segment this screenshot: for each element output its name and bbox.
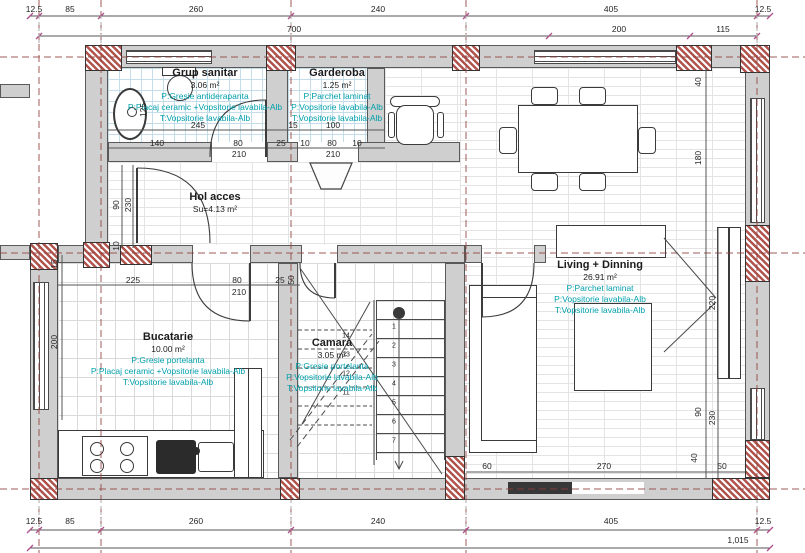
step-number: 3 [392, 362, 396, 369]
pier-top-right-corner [740, 45, 770, 73]
pier-top-1 [85, 45, 122, 71]
room-finish: P:Vopsitorie lavabila-Alb [291, 102, 383, 113]
dim-label: 15 [288, 121, 297, 130]
dim-label: 25 [275, 276, 284, 285]
dim-label: 60 [482, 462, 491, 471]
window-kitchen-left [33, 282, 49, 410]
burner [90, 442, 104, 456]
dim-label: 405 [604, 5, 618, 14]
dim-label-total: 1,015 [727, 536, 748, 545]
room-area: 26.91 m² [554, 272, 646, 283]
dim-label: 405 [604, 517, 618, 526]
office-chair-arm-left [388, 112, 395, 138]
dining-chair [531, 87, 558, 105]
wall-bath-south-c [358, 142, 460, 162]
dim-label: 270 [597, 462, 611, 471]
dim-label: 50 [717, 462, 726, 471]
pier-bottom-right [712, 478, 770, 500]
window-right-lower [750, 388, 765, 440]
terrace-door [508, 482, 644, 494]
dim-label: 240 [371, 517, 385, 526]
room-finish: P:Gresie portelanta [91, 355, 245, 366]
pier-bottom-left-corner [30, 478, 58, 500]
pier-top-4 [676, 45, 712, 71]
room-finish: P:Parchet laminat [554, 283, 646, 294]
room-name: Camara [286, 336, 378, 350]
dim-label: 200 [612, 25, 626, 34]
dim-label: 80 [232, 276, 241, 285]
room-finish: T:Vopsitorie lavabila-Alb [286, 383, 378, 394]
window-right-upper [750, 98, 765, 223]
dim-label: 700 [287, 25, 301, 34]
step-number: 5 [392, 400, 396, 407]
dim-label: 210 [232, 288, 246, 297]
wall-hall-south-e [534, 245, 546, 263]
dim-label: 12.5 [26, 5, 43, 14]
room-label-hall: Hol acces Su=4.13 m² [189, 190, 240, 215]
dim-label: 220 [708, 296, 717, 310]
dim-label: 85 [65, 517, 74, 526]
room-name: Hol acces [189, 190, 240, 204]
sofa-seat [481, 297, 537, 441]
dining-chair [531, 173, 558, 191]
pier-bottom-stairs [280, 478, 300, 500]
dim-label: 80 [233, 139, 242, 148]
dining-chair [579, 173, 606, 191]
step-number: 1 [392, 324, 396, 331]
pier-top-3 [452, 45, 480, 71]
step-number: 2 [392, 343, 396, 350]
dim-label: 260 [189, 5, 203, 14]
burner [120, 459, 134, 473]
pier-right-lower [745, 440, 770, 478]
dim-label: 40 [690, 453, 699, 462]
dim-label: 210 [326, 150, 340, 159]
wall-hall-south-d [465, 245, 482, 263]
dining-chair [579, 87, 606, 105]
dim-label: 115 [716, 25, 730, 34]
dim-label: 10 [300, 139, 309, 148]
wall-left-upper [85, 45, 108, 265]
room-label-pantry: Camara 3.05 m² P:Gresie portelanta P:Vop… [286, 336, 378, 394]
room-area: 1.25 m² [291, 80, 383, 91]
office-chair-seat [396, 105, 434, 145]
room-finish: P:Parchet laminat [291, 91, 383, 102]
dim-label: 245 [191, 121, 205, 130]
dim-label: 12.5 [755, 5, 772, 14]
dim-label: 25 [276, 139, 285, 148]
room-finish: P:Placaj ceramic +Vopsitorie lavabila-Al… [128, 102, 282, 113]
room-finish: P:Gresie portelanta [286, 361, 378, 372]
pier-left-mid [83, 242, 110, 268]
room-label-living: Living + Dinning 26.91 m² P:Parchet lami… [554, 258, 646, 316]
dim-label: 15 [50, 259, 59, 268]
dim-label: 10 [112, 241, 121, 250]
window-bath-top [126, 50, 212, 64]
room-label-bathroom: Grup sanitar 3.06 m² P:Gresie antiderapa… [128, 66, 282, 124]
stairs-right-run [376, 300, 445, 460]
sink-basin [198, 442, 234, 472]
dim-label: 180 [694, 151, 703, 165]
step-number: 7 [392, 438, 396, 445]
room-finish: P:Gresie antiderapanta [128, 91, 282, 102]
tv-panel [717, 227, 741, 379]
dim-label: 140 [150, 139, 164, 148]
dining-chair [499, 127, 517, 154]
dim-label: 50 [287, 275, 296, 284]
dim-label: 200 [50, 335, 59, 349]
room-finish: T:Vopsitorie lavabila-Alb [554, 305, 646, 316]
step-number: 6 [392, 419, 396, 426]
dim-label: 100 [326, 121, 340, 130]
sink-basin-dark [156, 440, 196, 474]
dim-label: 230 [124, 198, 133, 212]
room-finish: T:Vopsitorie lavabila-Alb [91, 377, 245, 388]
room-finish: P:Placaj ceramic +Vopsitorie lavabila-Al… [91, 366, 245, 377]
room-area: 10.00 m² [91, 344, 245, 355]
dim-label: 12.5 [26, 517, 43, 526]
burner [120, 442, 134, 456]
window-dining-top [534, 50, 676, 64]
room-name: Grup sanitar [128, 66, 282, 80]
dim-label: 225 [126, 276, 140, 285]
dim-label: 85 [65, 5, 74, 14]
wall-hall-south-b [250, 245, 302, 263]
dim-label: 125 [139, 103, 148, 117]
room-label-wardrobe: Garderoba 1.25 m² P:Parchet laminat P:Vo… [291, 66, 383, 124]
room-finish: P:Vopsitorie lavabila-Alb [286, 372, 378, 383]
wall-bottom [30, 478, 770, 500]
sideboard [556, 225, 666, 258]
room-label-kitchen: Bucatarie 10.00 m² P:Gresie portelanta P… [91, 330, 245, 388]
room-name: Garderoba [291, 66, 383, 80]
dining-table [518, 105, 638, 173]
dim-label: 40 [694, 77, 703, 86]
wall-hall-south-c [337, 245, 465, 263]
dim-label: 260 [189, 517, 203, 526]
dim-label: 12.5 [755, 517, 772, 526]
burner [90, 459, 104, 473]
hall-floor [108, 162, 460, 245]
wall-stub-left-mid [0, 245, 30, 260]
room-area: 3.06 m² [128, 80, 282, 91]
dim-label: 230 [708, 411, 717, 425]
wall-stair-right [445, 263, 465, 478]
room-name: Living + Dinning [554, 258, 646, 272]
wall-stub-left-top [0, 84, 30, 98]
pier-hall-south [120, 245, 152, 265]
floor-plan: 1 2 3 4 5 6 7 14 13 12 11 Grup sanitar 3… [0, 0, 805, 553]
office-chair-arm-right [437, 112, 444, 138]
pier-right-mid [745, 225, 770, 282]
dim-label: 90 [694, 407, 703, 416]
sink-faucet [192, 447, 200, 455]
dim-label: 80 [327, 139, 336, 148]
dim-label: 10 [352, 139, 361, 148]
room-name: Bucatarie [91, 330, 245, 344]
room-area: 3.05 m² [286, 350, 378, 361]
dining-chair [638, 127, 656, 154]
room-area: Su=4.13 m² [189, 204, 240, 215]
dim-label: 240 [371, 5, 385, 14]
step-number: 4 [392, 381, 396, 388]
dim-label: 210 [232, 150, 246, 159]
room-finish: P:Vopsitorie lavabila-Alb [554, 294, 646, 305]
dim-label: 90 [112, 200, 121, 209]
pier-stair-wall [445, 456, 465, 500]
